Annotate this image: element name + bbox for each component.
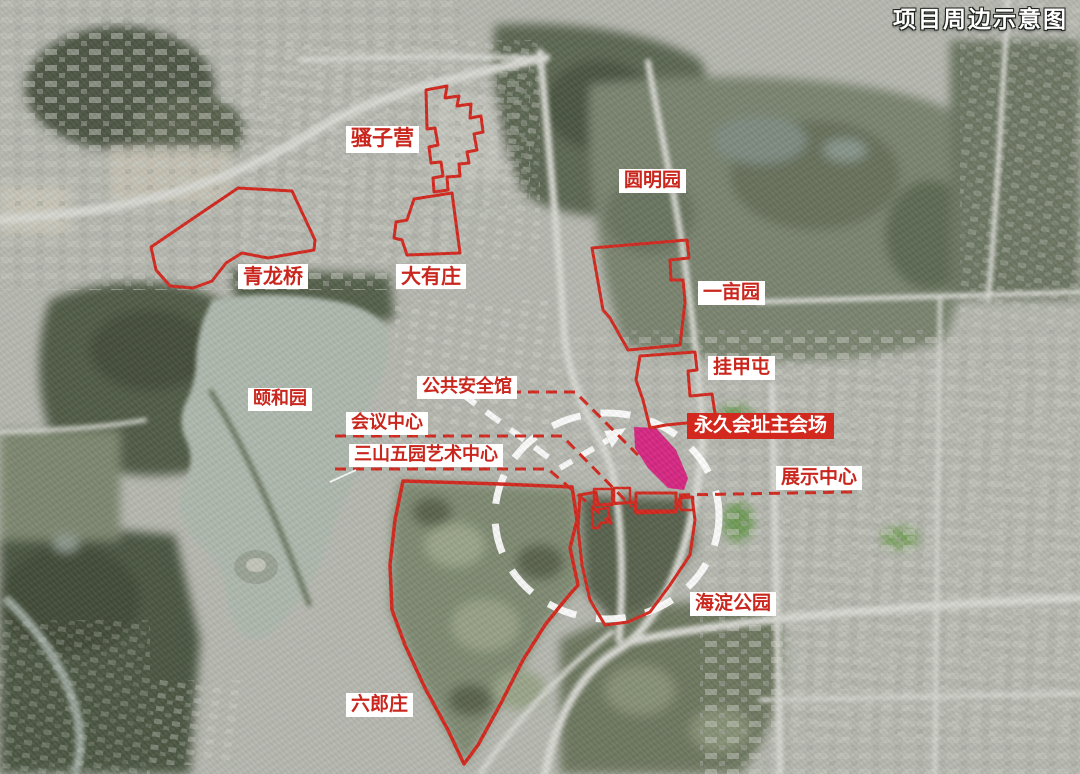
label-main-venue: 永久会址主会场 <box>687 413 834 439</box>
map-title: 项目周边示意图 <box>893 8 1068 34</box>
label-saoziying: 骚子营 <box>346 126 419 153</box>
label-art-center: 三山五园艺术中心 <box>349 444 503 467</box>
label-qinglongqiao: 青龙桥 <box>238 264 308 289</box>
label-haidian-park: 海淀公园 <box>690 592 776 616</box>
label-conference-center: 会议中心 <box>346 412 428 435</box>
label-liulangzhuang: 六郎庄 <box>346 693 413 717</box>
label-yimuyuan: 一亩园 <box>698 281 765 305</box>
map-canvas: 项目周边示意图 骚子营 圆明园 青龙桥 大有庄 一亩园 挂甲屯 颐和园 公共安全… <box>0 0 1080 774</box>
label-yiheyuan: 颐和园 <box>248 388 312 411</box>
terrain-layer <box>0 0 1080 774</box>
satellite-map <box>0 0 1080 774</box>
label-exhibition-center: 展示中心 <box>776 466 862 490</box>
label-guajiatun: 挂甲屯 <box>708 356 775 380</box>
label-public-safety-hall: 公共安全馆 <box>417 376 517 399</box>
label-dayouzhuang: 大有庄 <box>396 264 466 289</box>
label-yuanmingyuan: 圆明园 <box>619 169 686 193</box>
